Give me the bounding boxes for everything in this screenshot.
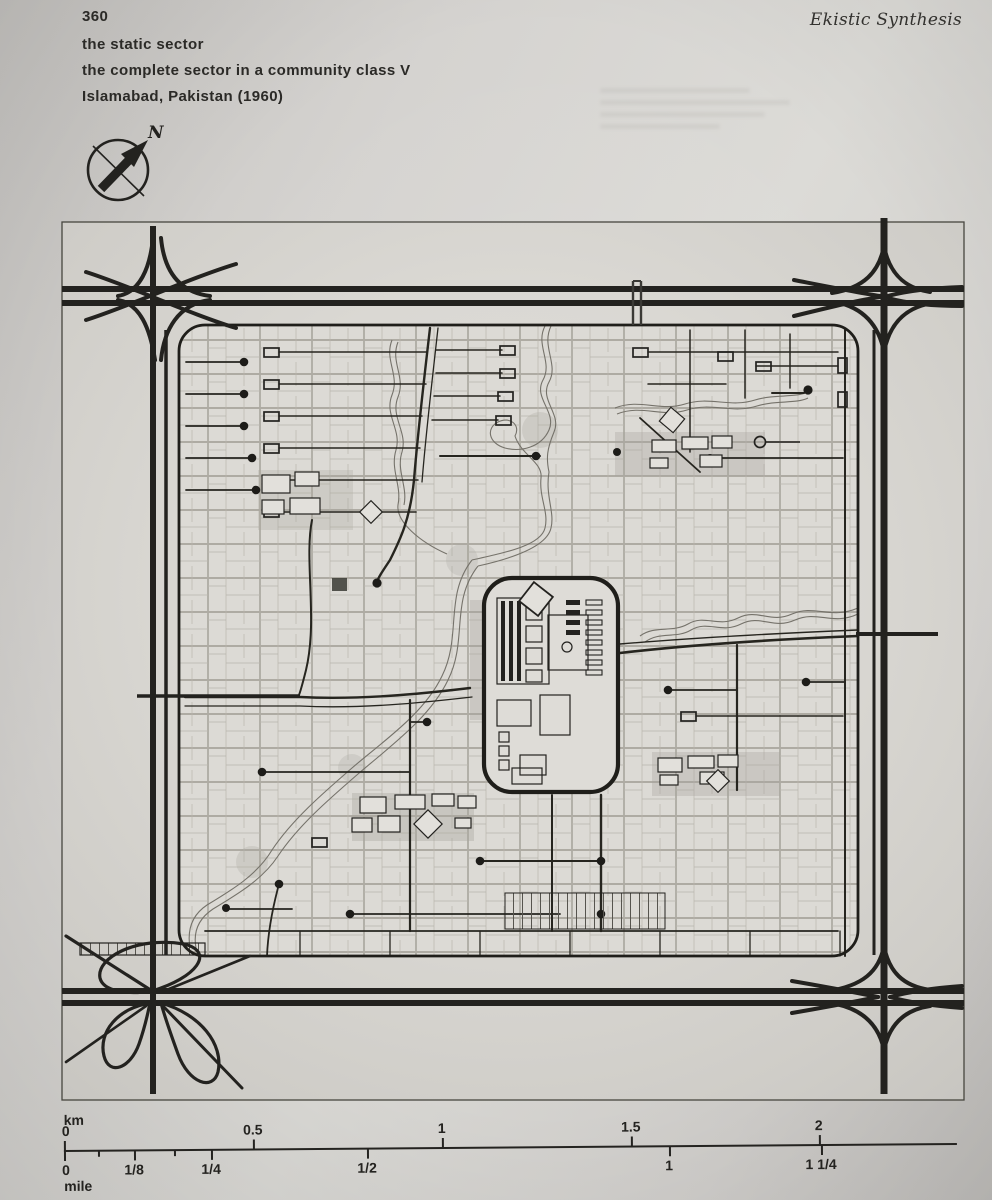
scale-mile-tick [669, 1146, 671, 1156]
scale-km-tick [253, 1140, 255, 1150]
page-bleedthrough [600, 124, 720, 129]
scale-km-tick [442, 1138, 444, 1148]
scale-mile-tick [821, 1145, 823, 1155]
scale-km-label: 1 [438, 1120, 446, 1136]
caption-line-1: the static sector [82, 36, 204, 53]
journal-title: Ekistic Synthesis [810, 10, 962, 30]
scale-mile-tick [134, 1150, 136, 1160]
page-number: 360 [82, 8, 108, 25]
scale-mile-label: 1 [665, 1157, 673, 1173]
scale-mile-label: 1 1/4 [805, 1156, 836, 1172]
scale-km-tick [64, 1141, 66, 1151]
scale-mile-label: 1/8 [124, 1161, 144, 1177]
scale-mile-tick [174, 1150, 176, 1156]
scale-mile-label: 0 [62, 1162, 70, 1178]
scale-km-label: 0.5 [243, 1121, 263, 1137]
scale-bar: km 0 0.5 1 1.5 2 0 1/8 1/4 1/2 1 1 1/4 m… [64, 1111, 965, 1196]
scale-mile-label: 1/2 [357, 1160, 377, 1176]
sector-map-figure [40, 180, 992, 1118]
page-bleedthrough [600, 112, 765, 117]
scale-km-label: 0 [62, 1123, 70, 1139]
scale-mile-tick [367, 1149, 369, 1159]
scale-mile-tick [98, 1151, 100, 1157]
scale-mile-unit: mile [64, 1178, 92, 1194]
scale-mile-tick [64, 1151, 66, 1161]
scale-km-tick [819, 1135, 821, 1145]
scale-mile-label: 1/4 [201, 1161, 221, 1177]
page-bleedthrough [600, 100, 790, 105]
compass-north-label: N [147, 123, 165, 143]
caption-line-2: the complete sector in a community class… [82, 62, 411, 79]
scale-km-tick [631, 1137, 633, 1147]
scale-km-label: 1.5 [621, 1118, 641, 1134]
page-bleedthrough [600, 88, 750, 93]
caption-line-3: Islamabad, Pakistan (1960) [82, 88, 283, 105]
scale-km-label: 2 [815, 1117, 823, 1133]
scale-mile-tick [211, 1150, 213, 1160]
civic-center-spine [484, 578, 618, 792]
